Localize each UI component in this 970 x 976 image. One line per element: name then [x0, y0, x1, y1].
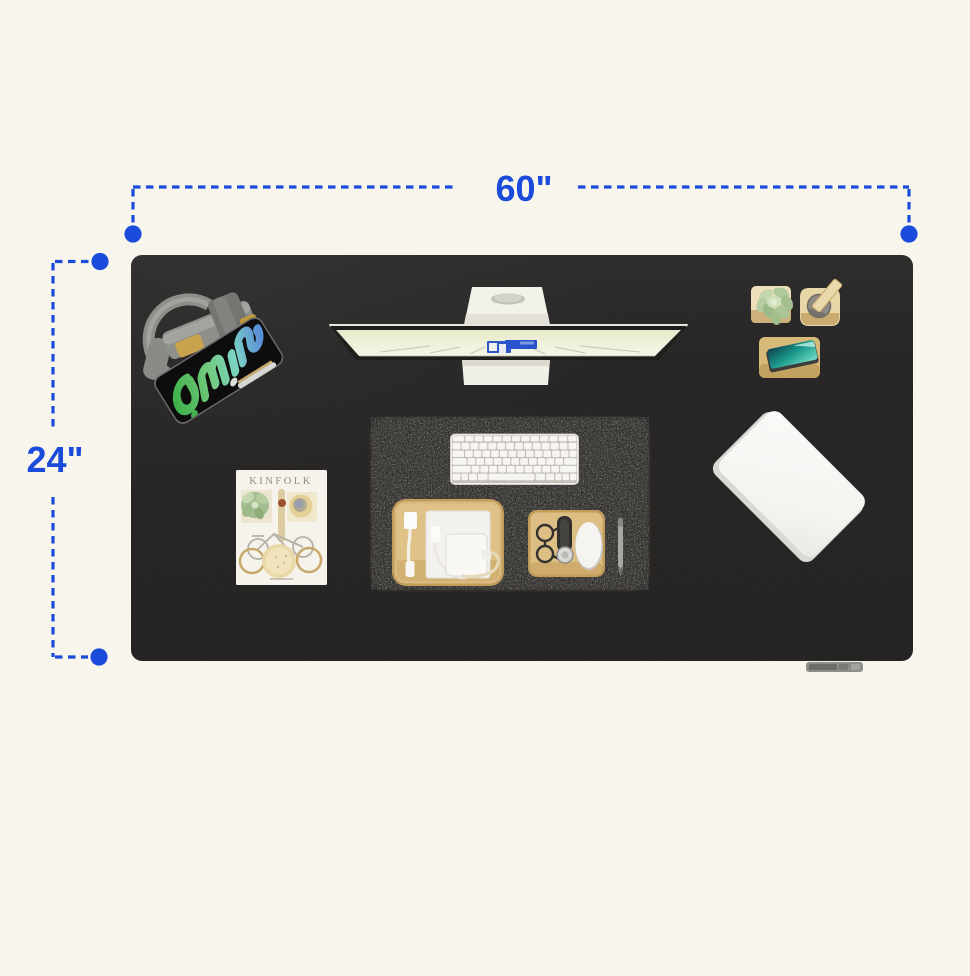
svg-text:24": 24"	[26, 439, 83, 480]
svg-text:KINFOLK: KINFOLK	[249, 476, 313, 487]
svg-text:60": 60"	[495, 168, 552, 209]
